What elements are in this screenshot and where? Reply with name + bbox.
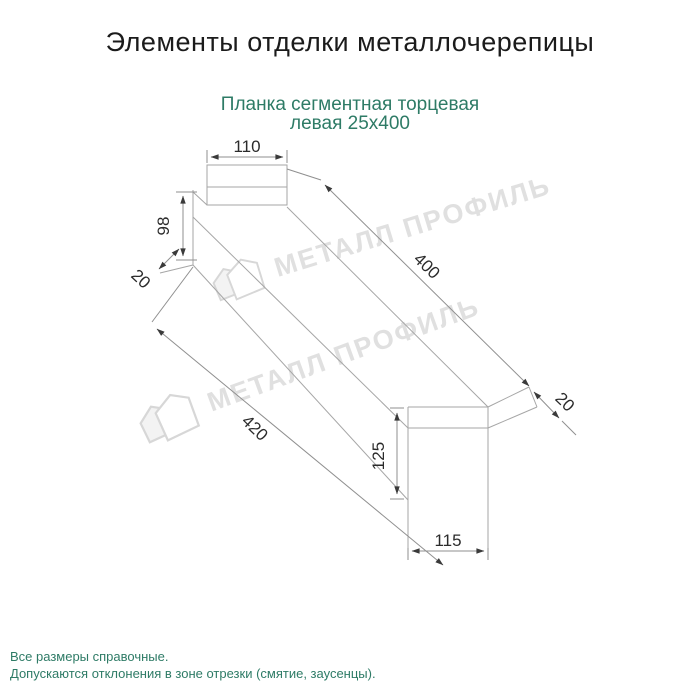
dim-label-right-height: 125 — [369, 442, 388, 470]
left-end-cap — [207, 165, 287, 205]
dim-label-length-top: 400 — [410, 249, 444, 282]
dim-label-left-hem: 20 — [127, 266, 154, 293]
dim-label-left-height: 98 — [154, 217, 173, 236]
right-hem-flap — [488, 387, 529, 407]
dimension-lines — [152, 150, 576, 565]
footer-notes: Все размеры справочные. Допускаются откл… — [10, 648, 376, 682]
technical-drawing-svg: 110 98 20 400 20 420 125 115 — [0, 0, 700, 700]
footer-note-line2: Допускаются отклонения в зоне отрезки (с… — [10, 665, 376, 682]
dim-label-length-bottom: 420 — [238, 411, 272, 444]
dim-label-right-hem: 20 — [551, 389, 578, 416]
page: Элементы отделки металлочерепицы Планка … — [0, 0, 700, 700]
dim-label-top-width: 110 — [233, 137, 260, 156]
profile-outline — [160, 165, 537, 548]
dim-label-right-width: 115 — [434, 531, 461, 550]
dimension-labels: 110 98 20 400 20 420 125 115 — [127, 137, 578, 550]
footer-note-line1: Все размеры справочные. — [10, 648, 376, 665]
strip-top-edge — [287, 207, 488, 407]
strip-fold-edge — [193, 217, 408, 428]
